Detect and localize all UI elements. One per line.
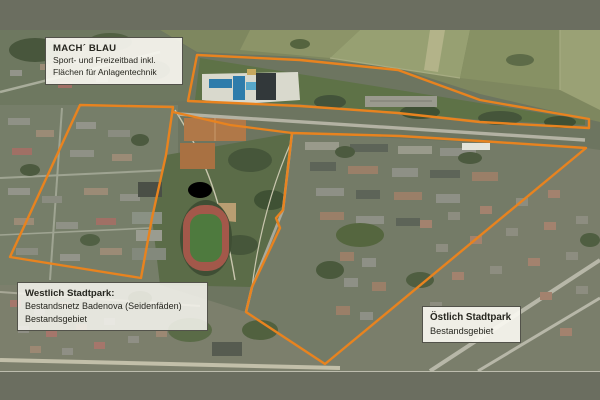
letterbox-band-top xyxy=(0,0,600,30)
label-mach-blau-line1: Sport- und Freizeitbad inkl. xyxy=(53,55,175,67)
label-westlich-stadtpark: Westlich Stadtpark: Bestandsnetz Badenov… xyxy=(17,282,208,331)
letterbox-band-bottom xyxy=(0,371,600,400)
label-west-title: Westlich Stadtpark: xyxy=(25,287,200,300)
label-mach-blau-title: MACH´ BLAU xyxy=(53,42,175,55)
label-east-title: Östlich Stadtpark xyxy=(430,311,513,325)
label-west-line1: Bestandsnetz Badenova (Seidenfäden) xyxy=(25,300,200,312)
label-oestlich-stadtpark: Östlich Stadtpark Bestandsgebiet xyxy=(422,306,521,343)
label-west-line2: Bestandsgebiet xyxy=(25,313,200,325)
slide-canvas: MACH´ BLAU Sport- und Freizeitbad inkl. … xyxy=(0,0,600,400)
label-east-line1: Bestandsgebiet xyxy=(430,325,513,338)
label-mach-blau: MACH´ BLAU Sport- und Freizeitbad inkl. … xyxy=(45,37,183,85)
stadium xyxy=(180,200,232,276)
label-mach-blau-line2: Flächen für Anlagentechnik xyxy=(53,67,175,79)
